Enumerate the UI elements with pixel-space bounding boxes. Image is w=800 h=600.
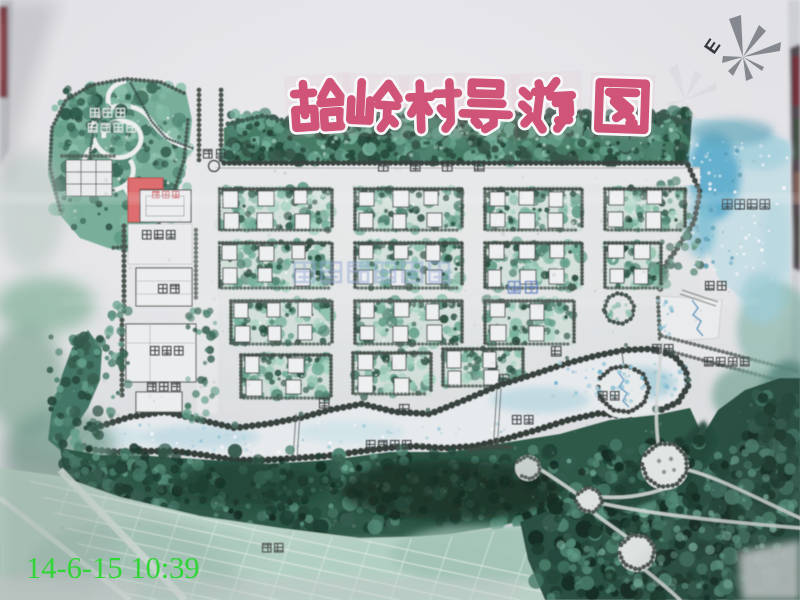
svg-text:14-6-15 10:39: 14-6-15 10:39 [26,551,200,585]
